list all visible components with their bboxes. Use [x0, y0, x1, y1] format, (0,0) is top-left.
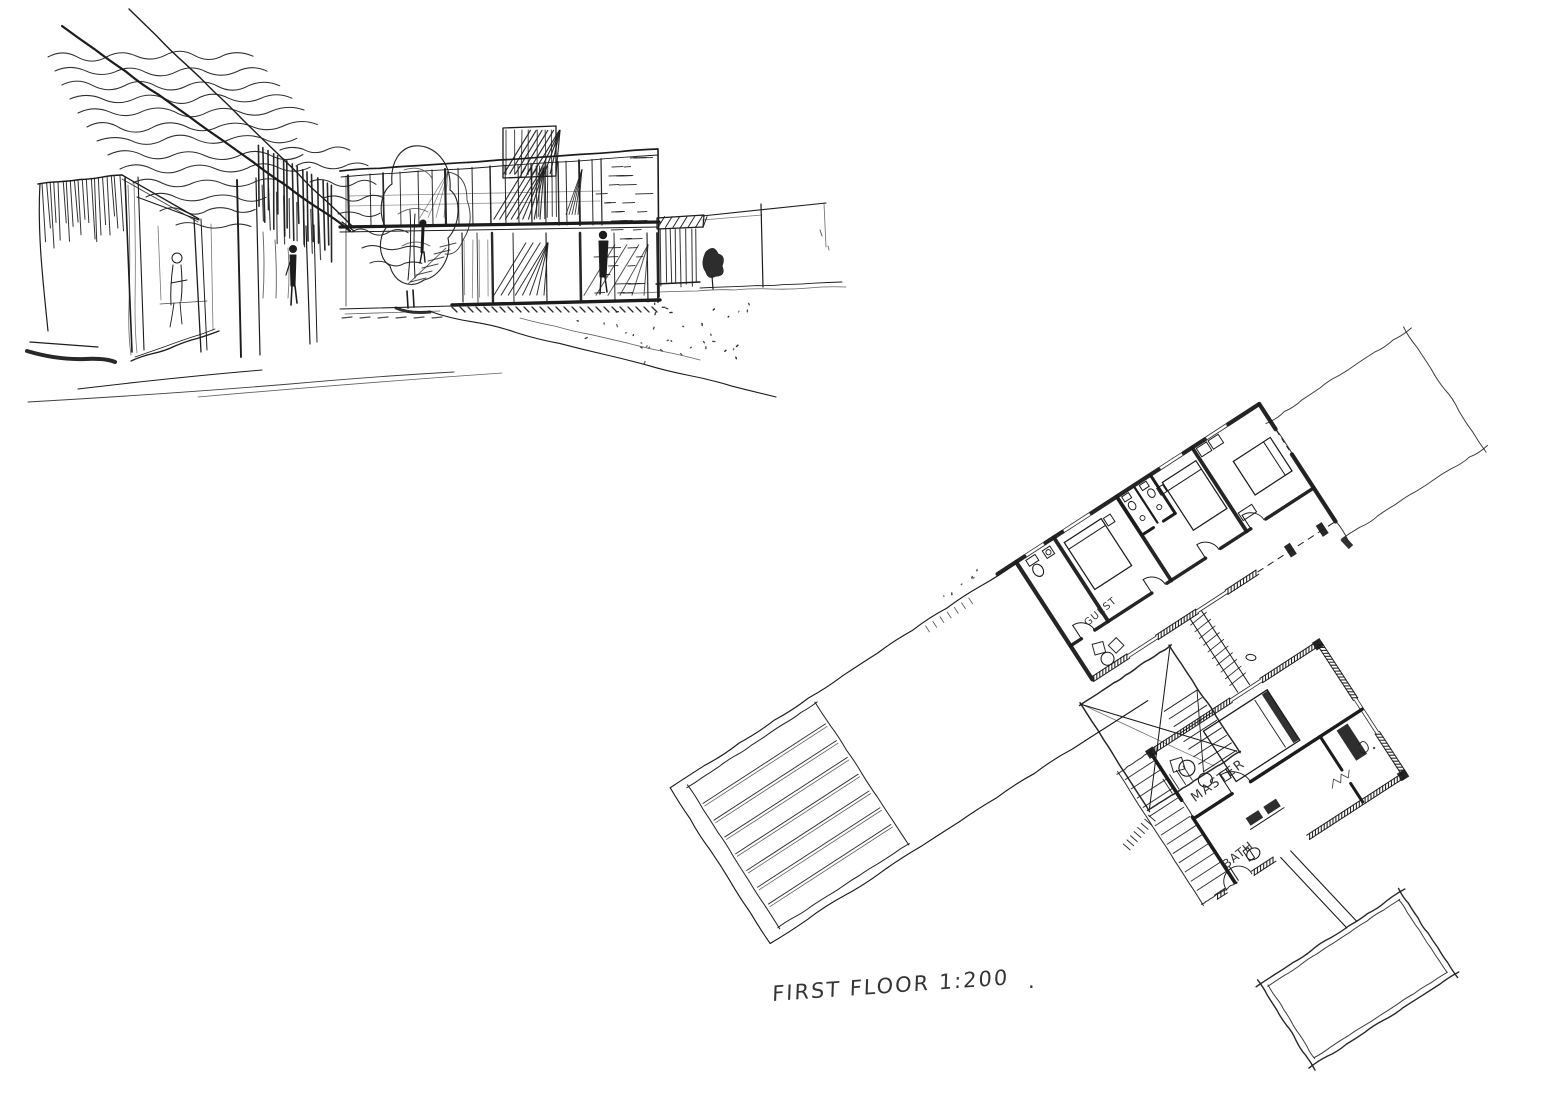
- living-roof-outline: [669, 543, 1148, 945]
- right-pavilion: [622, 203, 846, 293]
- plan-caption: FIRST FLOOR 1:200: [772, 964, 1010, 1006]
- room-label-master: MASTER: [1188, 756, 1248, 805]
- room-label-guest: GUEST: [1083, 595, 1120, 628]
- corridor-bridge: [1187, 599, 1267, 694]
- bedroom-wing-furniture: [1025, 411, 1326, 672]
- sketch-page: GUEST MASTER BATH FIRST FLOOR 1:200 .: [0, 0, 1556, 1100]
- entry-colonnade: [237, 145, 332, 357]
- terrace-outline: [1263, 324, 1491, 545]
- plan-caption-period: .: [1028, 969, 1037, 993]
- bathroom-fixtures: [1216, 718, 1391, 862]
- louvred-deck: [686, 701, 910, 929]
- colonnade-figure: [286, 245, 297, 305]
- floor-plan-sketch: GUEST MASTER BATH FIRST FLOOR 1:200 .: [600, 300, 1556, 1100]
- pavilion-shrub: [703, 248, 723, 289]
- main-house-volume: [340, 126, 660, 314]
- garage-figure: [160, 253, 207, 327]
- master-suite: [1128, 638, 1409, 901]
- door-swings: [1060, 507, 1422, 891]
- soffit-shading: [48, 51, 422, 266]
- bedroom-wing-walls: [997, 402, 1354, 717]
- garage-volume: [27, 175, 219, 362]
